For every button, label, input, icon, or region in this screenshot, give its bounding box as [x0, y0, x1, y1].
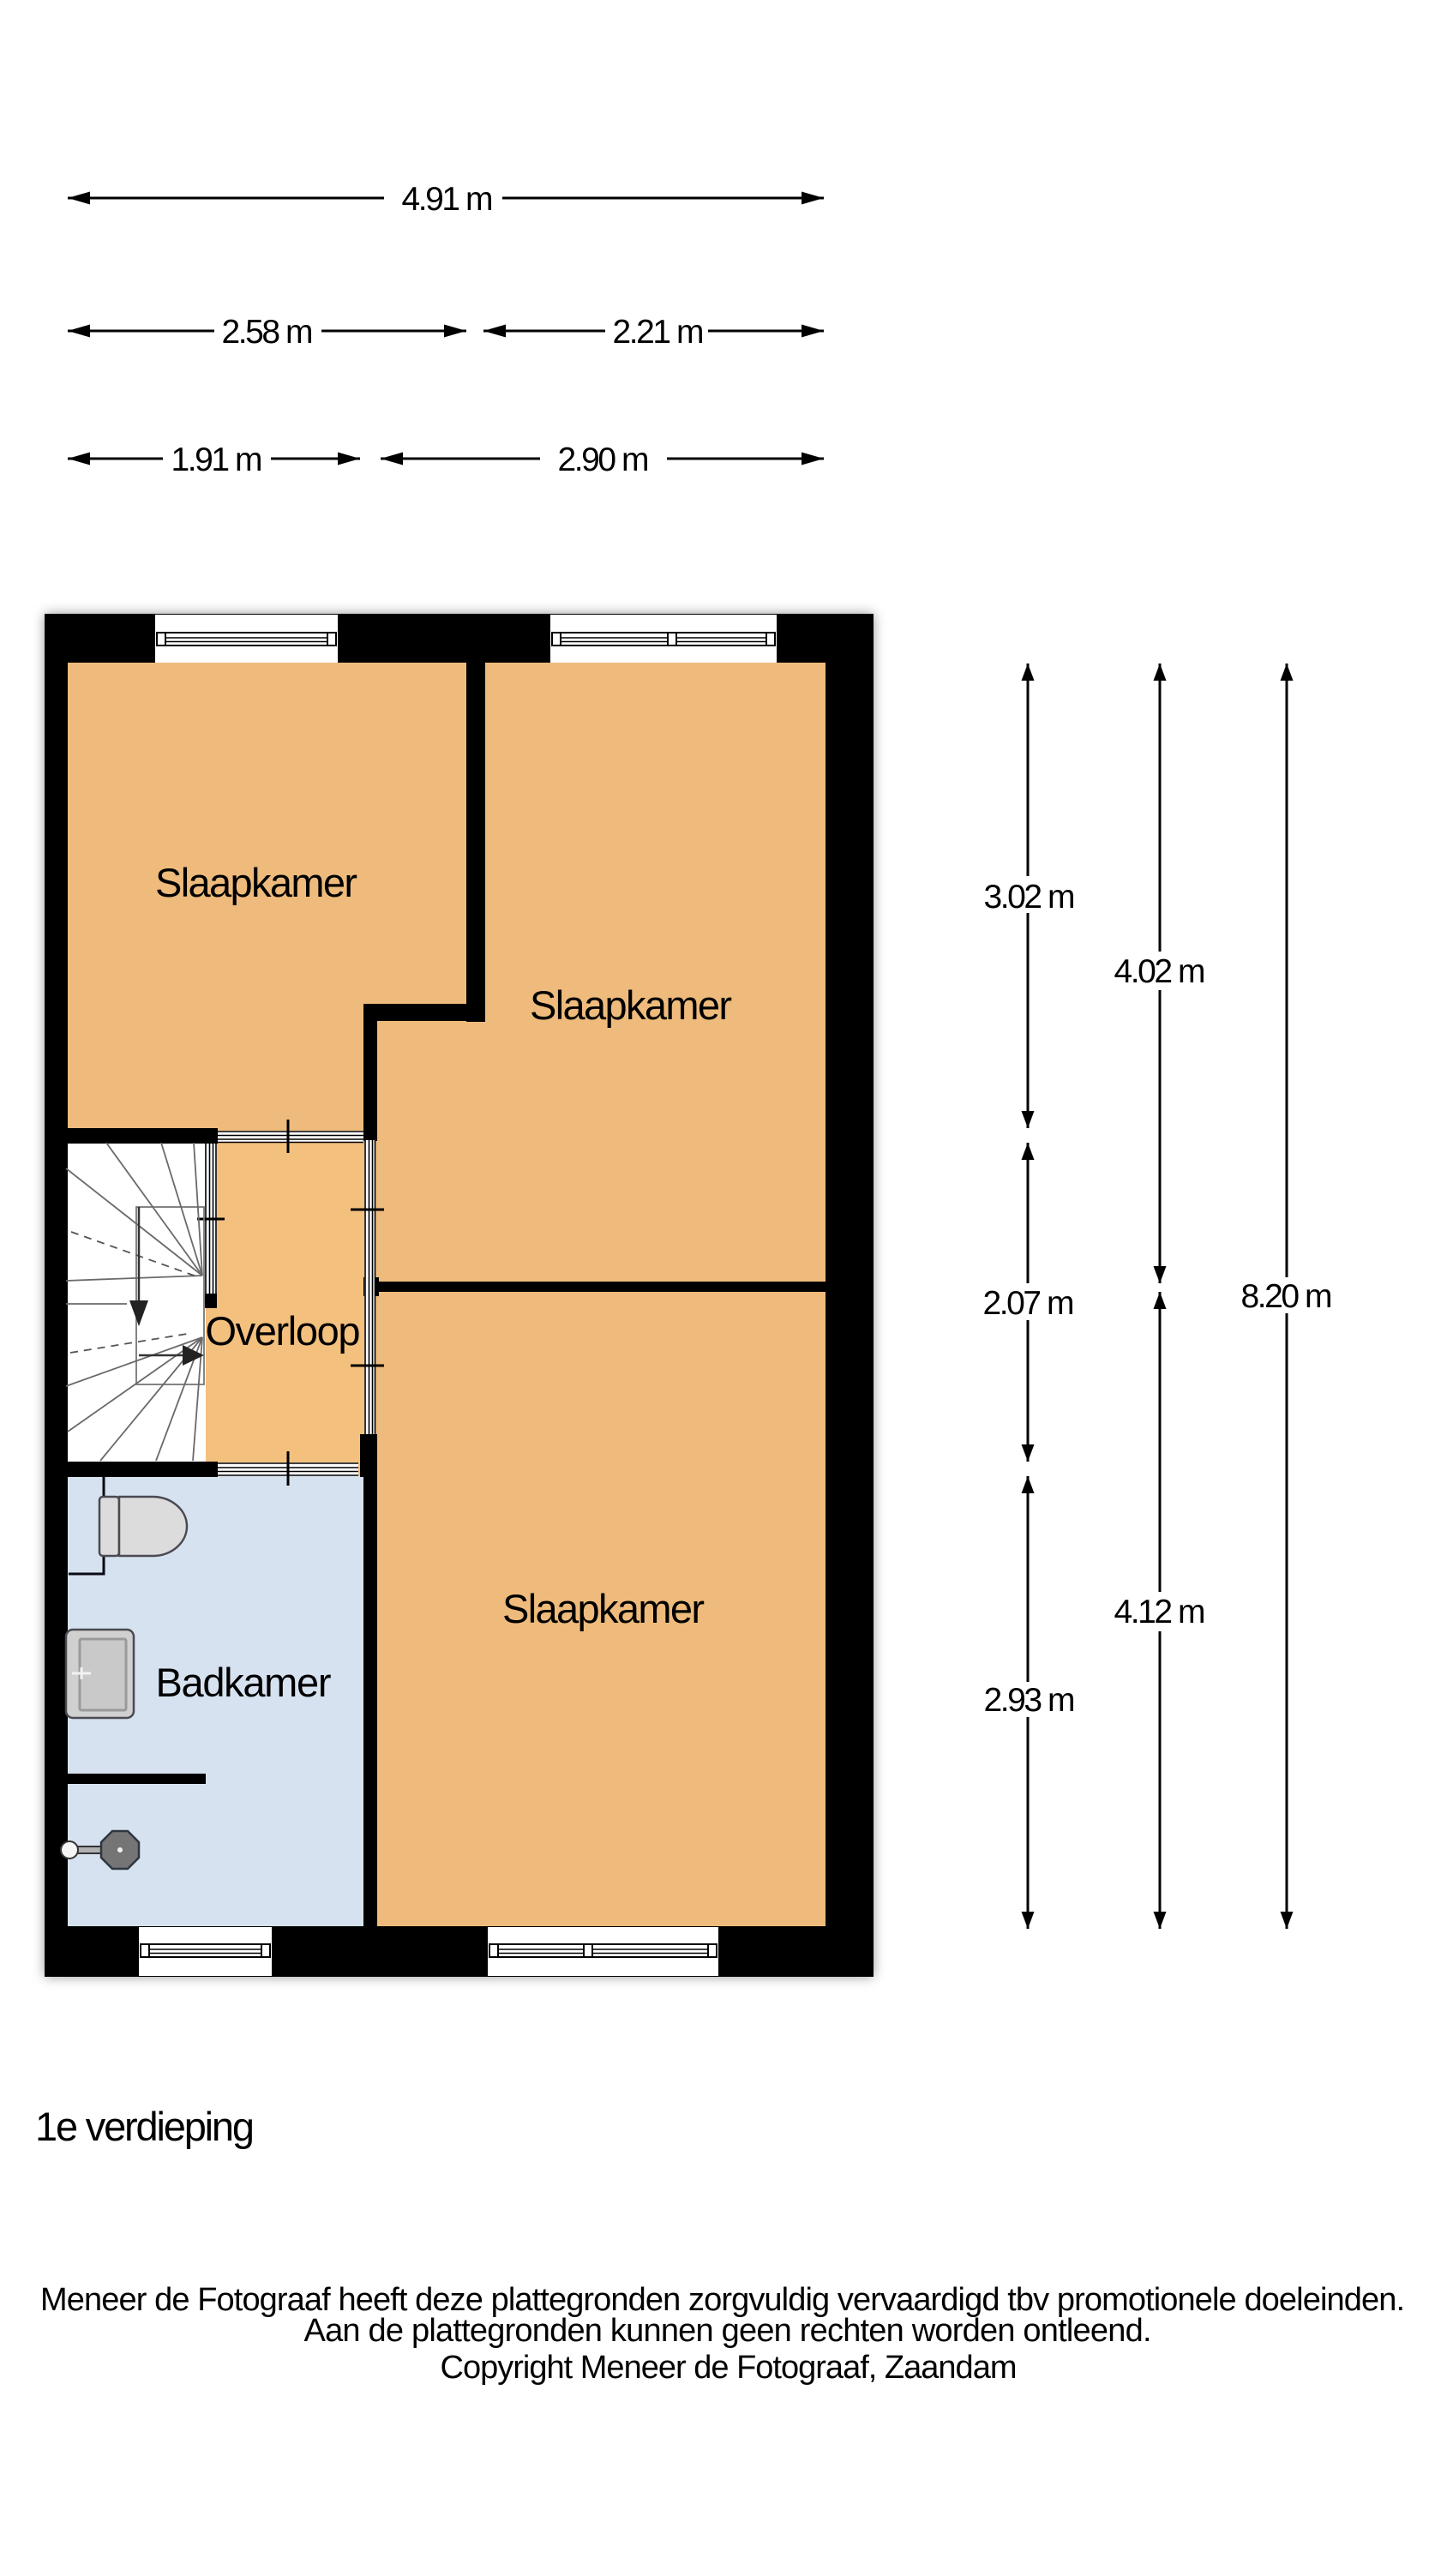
svg-text:4.91 m: 4.91 m: [402, 181, 494, 218]
svg-text:4.12 m: 4.12 m: [1114, 1594, 1206, 1630]
svg-text:Slaapkamer: Slaapkamer: [502, 1586, 705, 1631]
svg-text:Badkamer: Badkamer: [156, 1660, 332, 1705]
svg-text:Aan de plattegronden kunnen ge: Aan de plattegronden kunnen geen rechten…: [304, 2313, 1152, 2349]
svg-text:1e verdieping: 1e verdieping: [35, 2104, 255, 2149]
svg-text:3.02 m: 3.02 m: [984, 879, 1076, 916]
svg-text:1.91 m: 1.91 m: [171, 441, 263, 478]
svg-text:Copyright Meneer de Fotograaf,: Copyright Meneer de Fotograaf, Zaandam: [441, 2350, 1018, 2386]
svg-text:Overloop: Overloop: [206, 1308, 361, 1354]
svg-text:2.07 m: 2.07 m: [983, 1285, 1075, 1322]
svg-text:8.20 m: 8.20 m: [1241, 1278, 1333, 1315]
svg-text:Slaapkamer: Slaapkamer: [155, 860, 357, 905]
svg-text:2.93 m: 2.93 m: [984, 1682, 1076, 1719]
svg-text:2.58 m: 2.58 m: [222, 314, 314, 351]
svg-text:Slaapkamer: Slaapkamer: [530, 982, 732, 1028]
svg-text:2.21 m: 2.21 m: [613, 314, 705, 351]
svg-text:2.90 m: 2.90 m: [558, 441, 650, 478]
svg-text:4.02 m: 4.02 m: [1114, 953, 1206, 990]
